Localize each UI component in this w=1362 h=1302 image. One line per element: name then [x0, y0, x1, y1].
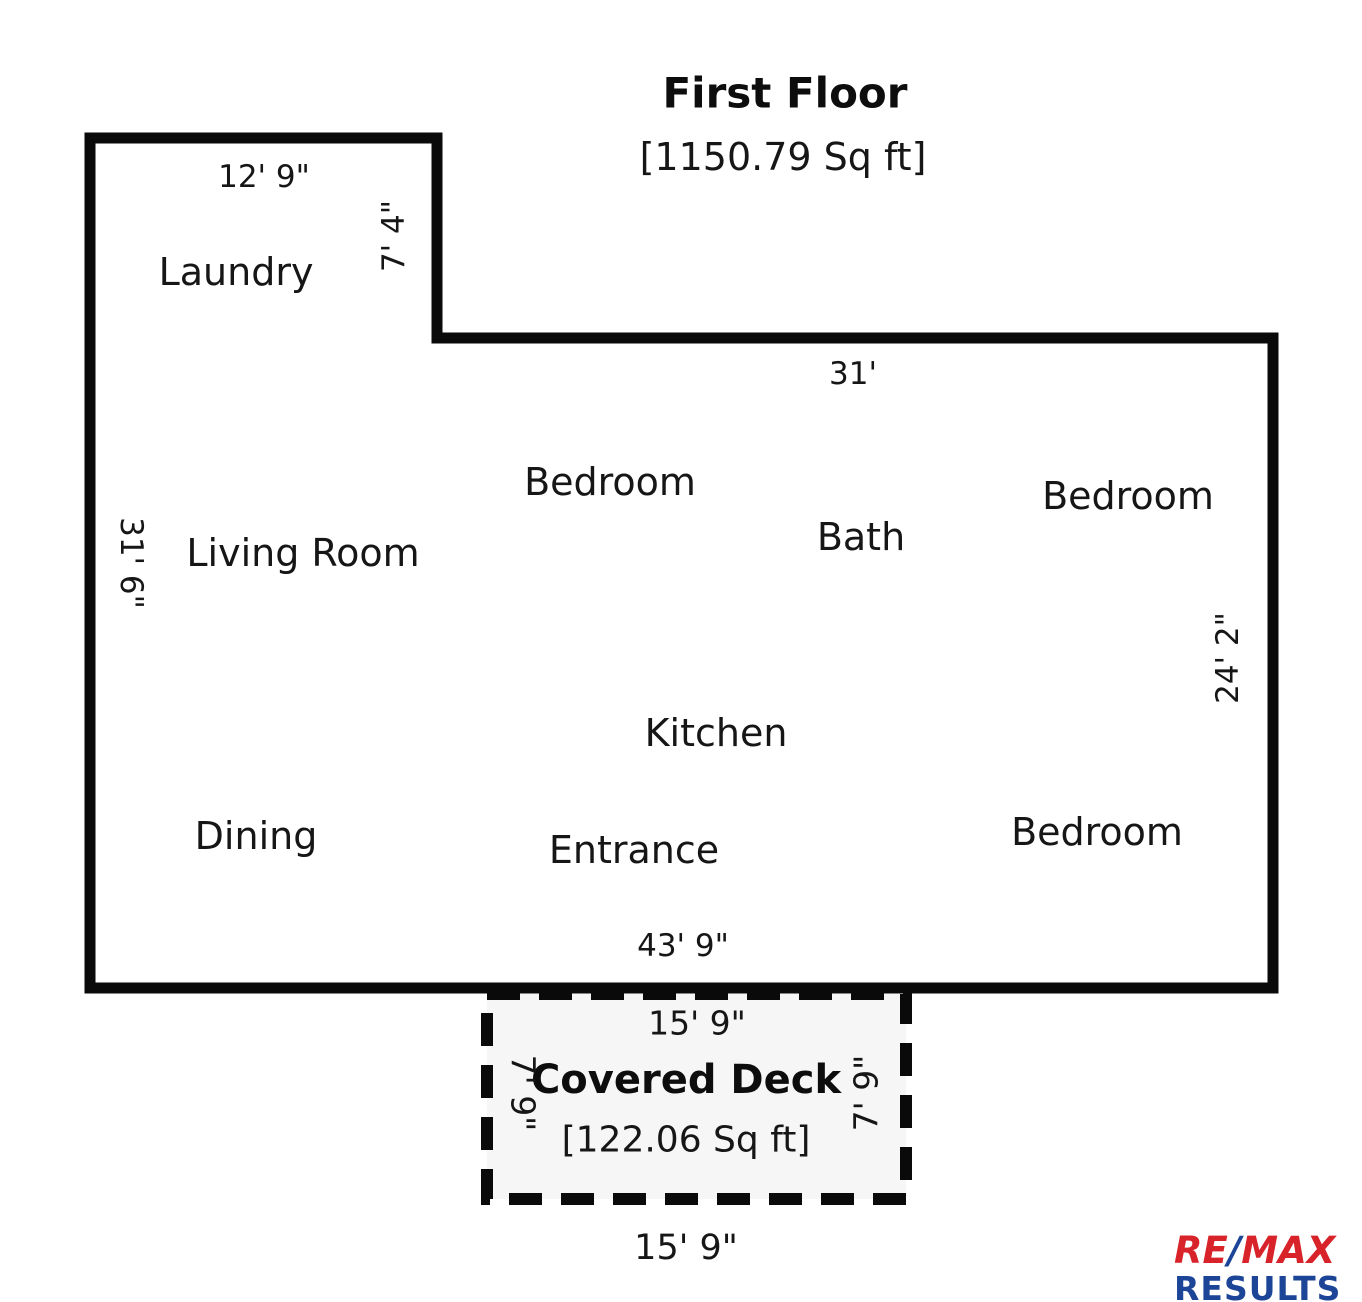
- dimension-right-height: 24' 2": [1210, 612, 1246, 704]
- deck-area: [122.06 Sq ft]: [562, 1120, 811, 1161]
- deck-title: Covered Deck: [531, 1057, 841, 1103]
- room-label-bedroom-top: Bedroom: [524, 460, 696, 504]
- room-label-living-room: Living Room: [186, 531, 419, 575]
- deck-dimension-bottom: 15' 9": [634, 1228, 738, 1268]
- dimension-laundry-height: 7' 4": [376, 200, 412, 272]
- room-label-entrance: Entrance: [549, 828, 719, 872]
- floorplan-area: [1150.79 Sq ft]: [640, 135, 927, 179]
- remax-results-text: RESULTS: [1174, 1272, 1341, 1302]
- floorplan-title: First Floor: [662, 69, 907, 118]
- floorplan-page: First Floor [1150.79 Sq ft] 12' 9" 7' 4"…: [0, 0, 1362, 1302]
- remax-max-text: MAX: [1241, 1229, 1335, 1272]
- dimension-laundry-width: 12' 9": [218, 159, 310, 195]
- room-label-kitchen: Kitchen: [645, 711, 788, 755]
- room-label-bath: Bath: [817, 515, 905, 559]
- floorplan-drawing: [0, 0, 1362, 1302]
- dimension-left-height: 31' 6": [113, 517, 149, 609]
- remax-slash-icon: /: [1228, 1229, 1242, 1272]
- room-label-laundry: Laundry: [159, 250, 314, 294]
- dimension-top-width: 31': [829, 356, 877, 392]
- room-label-dining: Dining: [195, 814, 318, 858]
- remax-re-text: RE: [1174, 1229, 1228, 1272]
- remax-wordmark: RE/MAX: [1174, 1232, 1335, 1269]
- remax-results-logo: RE/MAX RESULTS: [1174, 1232, 1341, 1302]
- room-label-bedroom-bottom: Bedroom: [1011, 810, 1183, 854]
- deck-dimension-left: 7' 9": [504, 1055, 543, 1132]
- deck-dimension-right: 7' 9": [847, 1055, 886, 1132]
- room-label-bedroom-right: Bedroom: [1042, 474, 1214, 518]
- deck-dimension-top: 15' 9": [648, 1004, 746, 1043]
- dimension-bottom-width: 43' 9": [637, 928, 729, 964]
